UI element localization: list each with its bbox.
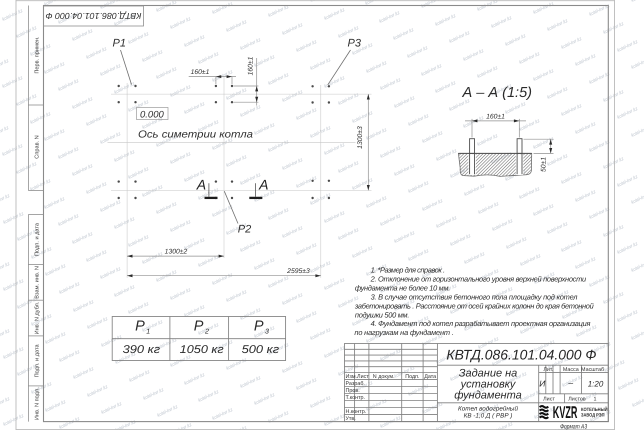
svg-text:Формат А3: Формат А3 (560, 424, 587, 430)
svg-text:Ось симетрии котла: Ось симетрии котла (138, 129, 253, 140)
svg-text:по нагрузкам на фундамент .: по нагрузкам на фундамент . (354, 328, 454, 337)
svg-text:А: А (196, 177, 206, 193)
svg-text:КВТД.086.101.04.000 Ф: КВТД.086.101.04.000 Ф (446, 347, 596, 363)
svg-text:Лит.: Лит. (543, 367, 553, 373)
svg-text:1300±3: 1300±3 (357, 126, 364, 149)
svg-text:2: 2 (204, 328, 209, 335)
svg-text:P: P (254, 319, 264, 335)
svg-text:Изм.Лист: Изм.Лист (346, 374, 370, 380)
svg-text:50±1: 50±1 (541, 157, 548, 172)
svg-text:Взам. инв. N: Взам. инв. N (35, 266, 41, 299)
svg-text:N докум.: N докум. (373, 374, 395, 380)
svg-text:P2: P2 (238, 223, 251, 235)
svg-text:ЗАВОД РЭП: ЗАВОД РЭП (581, 412, 605, 418)
svg-text:А: А (258, 177, 268, 193)
svg-text:3. В случае отсутствия бетонно: 3. В случае отсутствия бетонного пола пл… (371, 292, 579, 301)
svg-text:Листов: Листов (568, 396, 586, 402)
svg-text:Перв. примен.: Перв. примен. (35, 36, 41, 74)
svg-text:Утв.: Утв. (346, 416, 356, 422)
svg-text:забетонировать . Расстояние от: забетонировать . Расстояние от осей край… (354, 301, 594, 310)
svg-text:Т.контр.: Т.контр. (346, 395, 366, 401)
svg-text:Инв. N подл.: Инв. N подл. (35, 387, 41, 420)
svg-text:фундамента: фундамента (454, 390, 522, 402)
svg-text:160±1: 160±1 (248, 56, 255, 75)
svg-text:390 кг: 390 кг (123, 344, 161, 356)
svg-text:И: И (539, 379, 546, 389)
svg-text:1: 1 (146, 328, 150, 335)
svg-text:1:20: 1:20 (588, 380, 604, 389)
svg-text:фундамента не более 10 мм.: фундамента не более 10 мм. (355, 283, 450, 292)
svg-text:А – А (1:5): А – А (1:5) (461, 85, 532, 101)
svg-text:2595±3: 2595±3 (286, 268, 310, 275)
svg-text:500 кг: 500 кг (242, 344, 280, 356)
svg-text:подушки 500 мм.: подушки 500 мм. (355, 310, 410, 319)
svg-text:1. *Размер для справок .: 1. *Размер для справок . (371, 265, 446, 274)
svg-text:1: 1 (594, 396, 597, 402)
svg-text:3: 3 (265, 328, 269, 335)
svg-text:160±1: 160±1 (486, 113, 505, 120)
svg-text:Подп. и дата: Подп. и дата (35, 344, 41, 378)
svg-text:Разраб.: Разраб. (346, 381, 365, 387)
svg-text:Масштаб: Масштаб (581, 367, 604, 373)
svg-text:4. Фундамент под котел разраба: 4. Фундамент под котел разрабатывает про… (371, 319, 591, 328)
svg-text:P: P (194, 319, 204, 335)
svg-text:Н.контр.: Н.контр. (346, 409, 367, 415)
svg-text:KVZR: KVZR (553, 403, 578, 422)
svg-text:1300±2: 1300±2 (165, 249, 188, 256)
svg-text:P3: P3 (348, 38, 362, 50)
svg-text:P1: P1 (113, 38, 126, 50)
svg-text:Дата: Дата (424, 374, 436, 380)
svg-text:Справ. N: Справ. N (35, 135, 41, 158)
svg-text:КВ -1,0 Д ( РВР ): КВ -1,0 Д ( РВР ) (464, 413, 513, 420)
svg-text:КВТД.086.101.04.000 Ф: КВТД.086.101.04.000 Ф (45, 11, 141, 21)
svg-text:Подп. и дата: Подп. и дата (35, 222, 41, 256)
svg-text:Пров.: Пров. (346, 388, 360, 394)
svg-text:Масса: Масса (563, 367, 579, 373)
svg-text:Инв. N дубл.: Инв. N дубл. (34, 301, 41, 334)
svg-text:1050 кг: 1050 кг (180, 344, 224, 356)
svg-text:Подп.: Подп. (405, 374, 419, 380)
svg-text:P: P (135, 319, 145, 335)
svg-text:2. Отклонение от горизонтально: 2. Отклонение от горизонтального уровня … (370, 274, 586, 283)
svg-text:Котел водогрейный: Котел водогрейный (458, 406, 518, 413)
svg-text:0.000: 0.000 (140, 109, 164, 120)
svg-text:Задание на: Задание на (459, 367, 518, 379)
svg-text:160±1: 160±1 (191, 69, 210, 76)
svg-text:установку: установку (460, 379, 517, 391)
svg-text:Лист: Лист (543, 396, 555, 402)
svg-text:–: – (568, 378, 573, 388)
svg-text:КОТЕЛЬНЫЙ: КОТЕЛЬНЫЙ (581, 406, 608, 413)
